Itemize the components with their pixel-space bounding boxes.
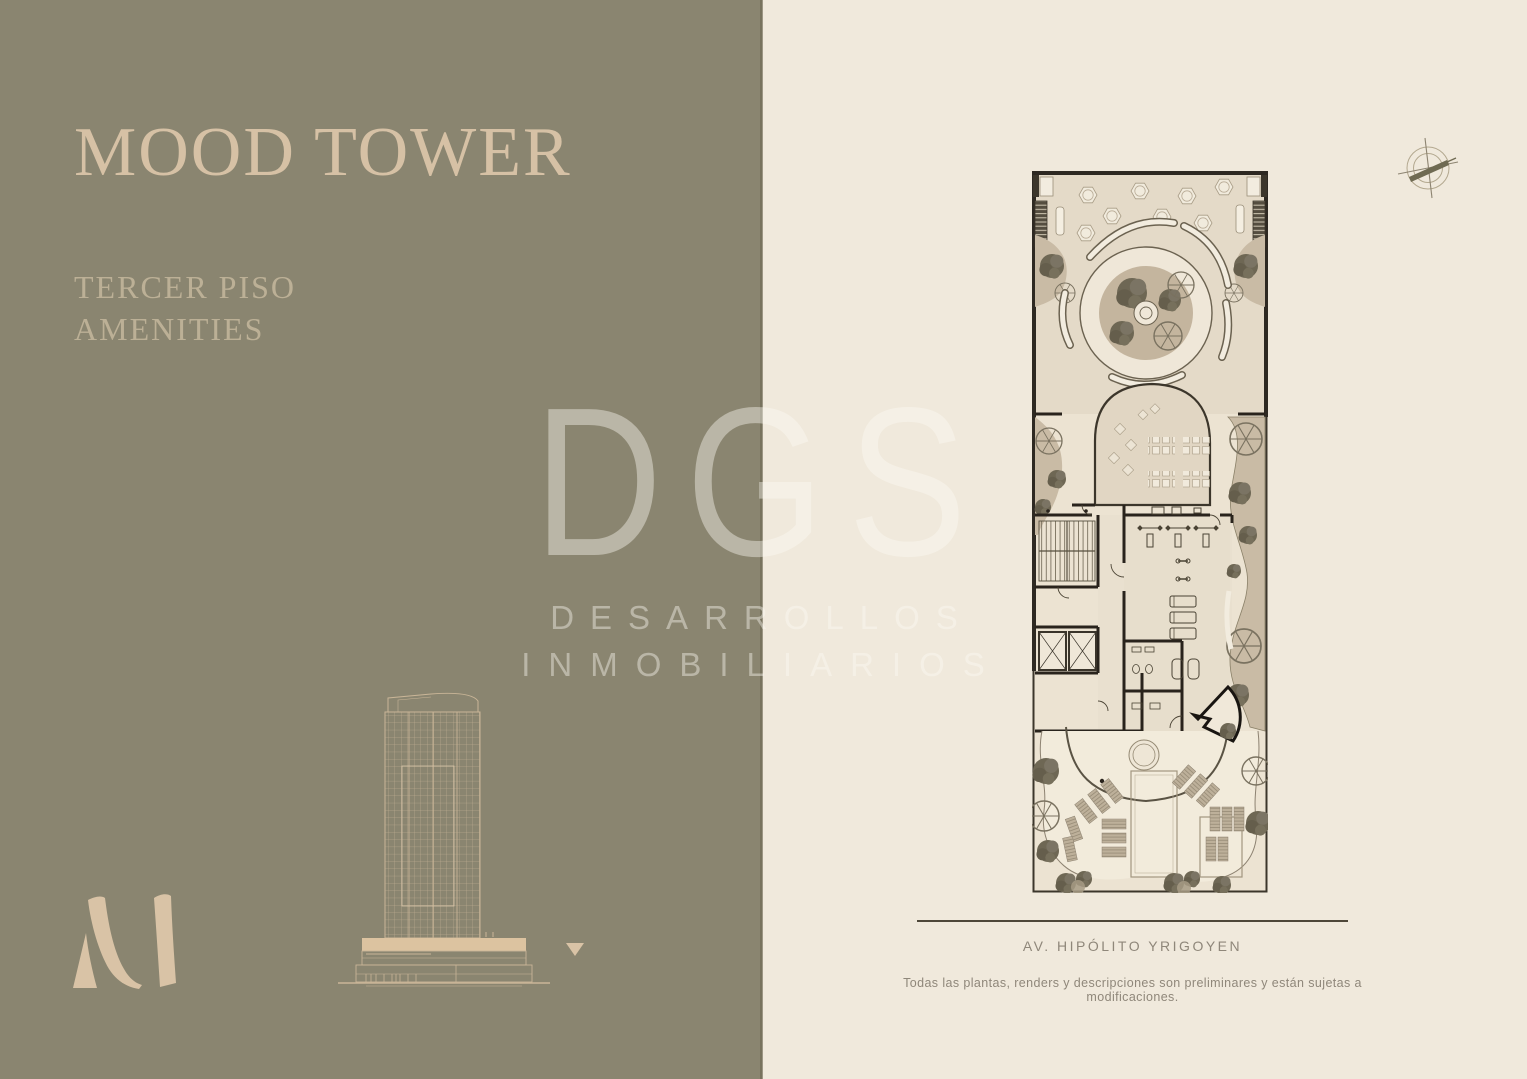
compass-north-icon [1396, 134, 1462, 200]
disclaimer-text: Todas las plantas, renders y descripcion… [860, 976, 1405, 1004]
page-title: MOOD TOWER [74, 118, 572, 188]
street-line [917, 920, 1348, 922]
subtitle-line-1: TERCER PISO [74, 266, 296, 308]
panel-divider [760, 0, 763, 1079]
m-monogram-icon [68, 890, 188, 996]
tower-crown [388, 693, 478, 712]
tower-body [385, 712, 480, 938]
page-subtitle: TERCER PISO AMENITIES [74, 266, 296, 350]
lounge-hall [1095, 384, 1210, 505]
building-elevation-icon [336, 686, 552, 990]
garden-circle [1080, 247, 1212, 379]
street-label: AV. HIPÓLITO YRIGOYEN [905, 938, 1360, 954]
down-triangle-icon [566, 943, 584, 956]
ground-line [338, 983, 550, 986]
third-floor-amenities-plan [1032, 171, 1268, 893]
subtitle-line-2: AMENITIES [74, 308, 296, 350]
tower-podium [356, 951, 532, 982]
